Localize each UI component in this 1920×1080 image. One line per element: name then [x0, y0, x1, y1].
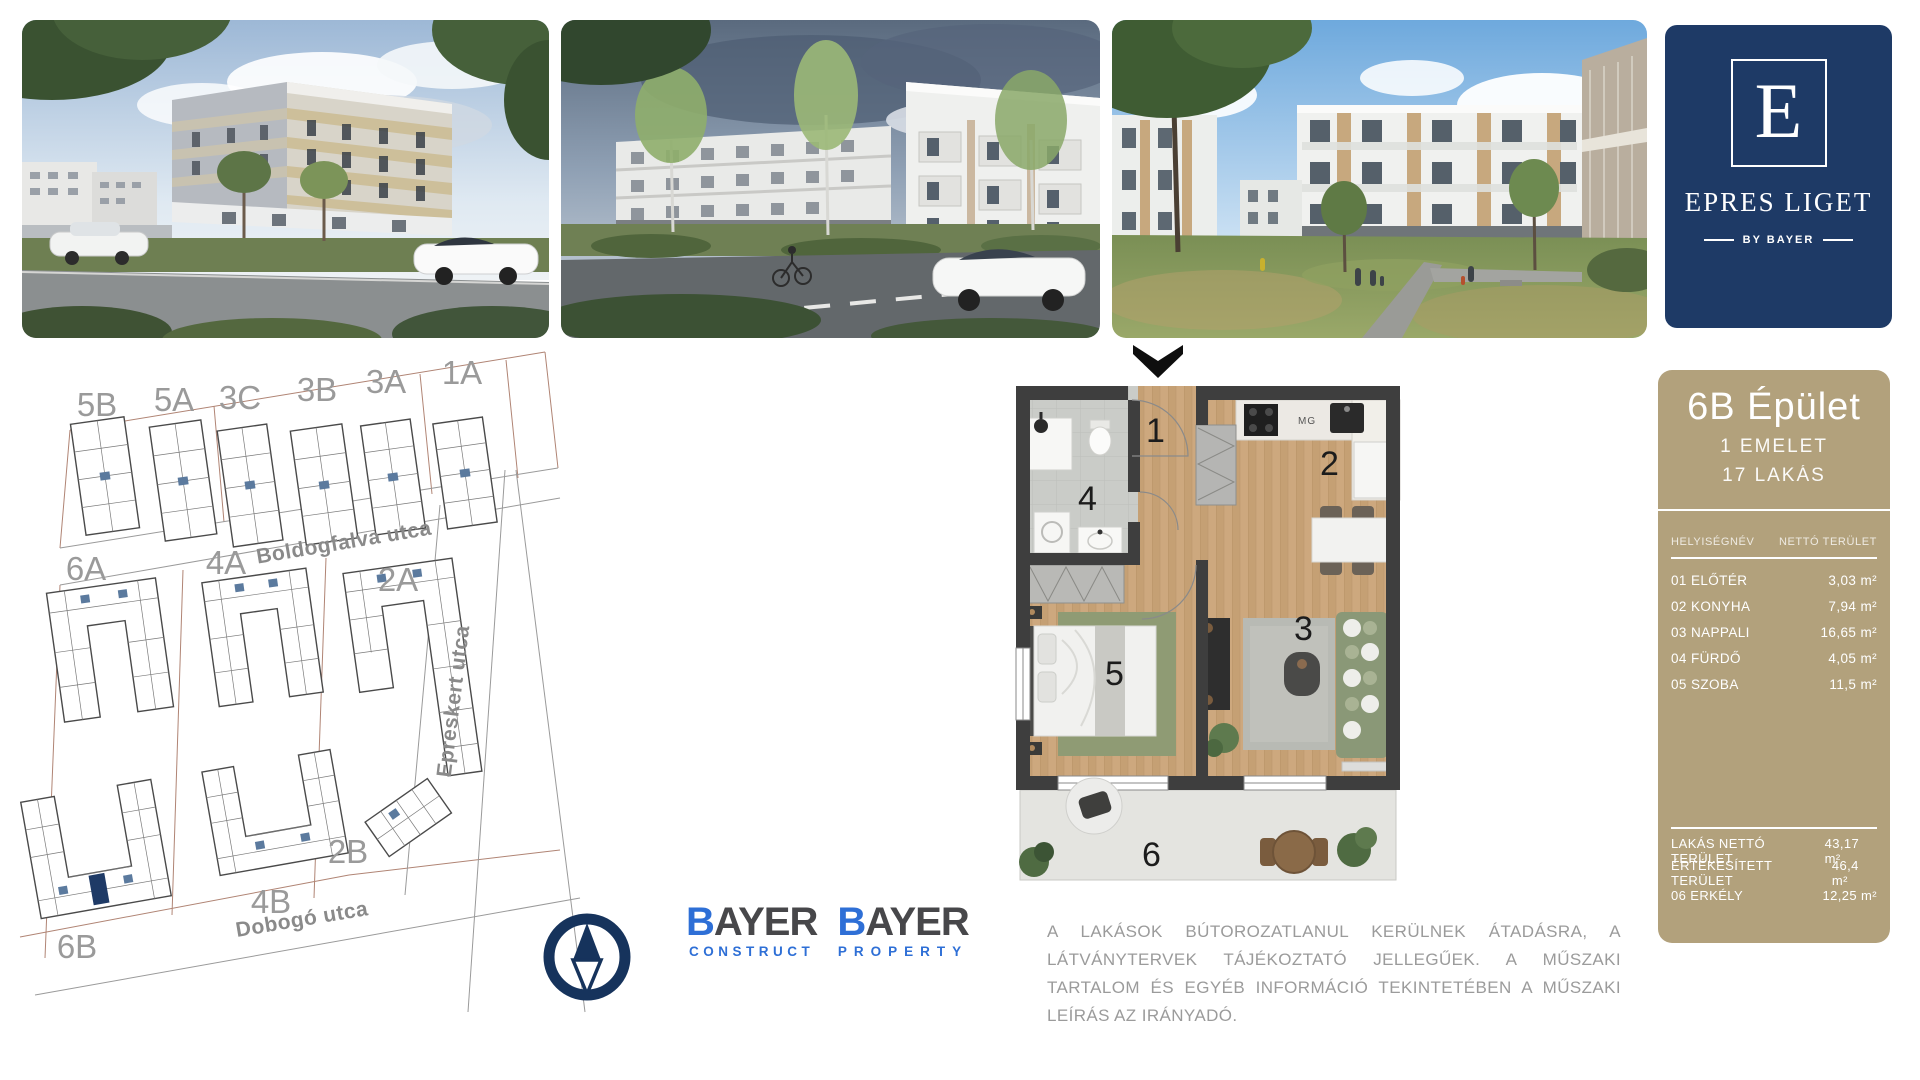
map-building-6B[interactable] — [21, 779, 171, 918]
company-logos: BAYER CONSTRUCT BAYER PROPERTY — [686, 903, 969, 959]
render-photo-3-art — [1112, 20, 1647, 338]
construct-label: CONSTRUCT — [686, 944, 817, 959]
hanging-chair — [1066, 778, 1122, 834]
brand-logo-panel: E EPRES LIGET BY BAYER — [1665, 25, 1892, 328]
table-row: 02 KONYHA 7,94 m² — [1671, 593, 1877, 619]
table-row: 04 FÜRDŐ 4,05 m² — [1671, 645, 1877, 671]
byline-text: BY BAYER — [1743, 234, 1815, 246]
map-building-5A[interactable] — [149, 420, 216, 541]
table-row: 01 ELŐTÉR 3,03 m² — [1671, 567, 1877, 593]
column-header-area: NETTÓ TERÜLET — [1779, 536, 1877, 548]
table-row: 03 NAPPALI 16,65 m² — [1671, 619, 1877, 645]
summary-row: ÉRTÉKESÍTETT TERÜLET 46,4 m² — [1671, 862, 1877, 884]
info-panel-header: 6B Épület 1 EMELET 17 LAKÁS — [1658, 370, 1890, 509]
map-label-3C[interactable]: 3C — [219, 379, 261, 416]
byline-rule-right — [1823, 239, 1853, 241]
column-header-room: HELYISÉGNÉV — [1671, 536, 1754, 548]
render-photo-courtyard — [1112, 20, 1647, 338]
table-row: 05 SZOBA 11,5 m² — [1671, 671, 1877, 697]
bayer-property-logo: BAYER PROPERTY — [837, 903, 968, 959]
map-building-1A[interactable] — [433, 417, 497, 529]
floor-plan: MG 1 2 3 4 5 6 — [1010, 340, 1406, 888]
map-label-3A[interactable]: 3A — [366, 363, 406, 400]
render-photo-street-view — [561, 20, 1100, 338]
map-building-3C[interactable] — [217, 424, 283, 547]
room-number-6: 6 — [1142, 836, 1161, 874]
map-building-3B[interactable] — [290, 424, 357, 545]
room-number-4: 4 — [1078, 480, 1097, 518]
render-photo-1-art — [22, 20, 549, 338]
wardrobe — [1028, 565, 1124, 603]
brand-byline: BY BAYER — [1665, 234, 1892, 246]
brochure-page: E EPRES LIGET BY BAYER — [0, 0, 1920, 1080]
units-subtitle: 17 LAKÁS — [1658, 465, 1890, 487]
site-map: 5B 5A 3C 3B 3A 1A 6A 4A 2A 6B 4B 2B Bold… — [15, 350, 710, 1020]
bed — [1026, 626, 1156, 736]
map-label-6B[interactable]: 6B — [57, 928, 97, 965]
microwave-label: MG — [1298, 416, 1316, 427]
summary-rule — [1671, 827, 1877, 829]
map-building-2B[interactable] — [365, 779, 451, 857]
map-label-5B[interactable]: 5B — [77, 386, 117, 423]
map-label-1A[interactable]: 1A — [442, 354, 482, 391]
room-number-3: 3 — [1294, 610, 1313, 648]
toilet-icon — [1089, 420, 1111, 455]
map-building-4A[interactable] — [202, 568, 323, 706]
map-building-4B[interactable] — [202, 750, 348, 876]
sink-vanity-icon — [1078, 527, 1122, 553]
stove-icon — [1244, 404, 1278, 436]
room-number-2: 2 — [1320, 445, 1339, 483]
washer-icon — [1034, 512, 1070, 553]
map-label-3B[interactable]: 3B — [297, 371, 337, 408]
room-area-table: HELYISÉGNÉV NETTÓ TERÜLET 01 ELŐTÉR 3,03… — [1658, 536, 1890, 697]
brand-emblem-box: E — [1731, 59, 1827, 167]
render-photo-2-art — [561, 20, 1100, 338]
area-summary: LAKÁS NETTÓ TERÜLET 43,17 m² ÉRTÉKESÍTET… — [1671, 818, 1877, 906]
bayer-construct-logo: BAYER CONSTRUCT — [686, 903, 817, 959]
building-title: 6B Épület — [1658, 386, 1890, 429]
coffee-table — [1284, 652, 1320, 696]
legal-disclaimer: A LAKÁSOK BÚTOROZATLANUL KERÜLNEK ÁTADÁS… — [1047, 918, 1621, 1030]
map-label-2A[interactable]: 2A — [378, 561, 418, 598]
bayer-b-letter: B — [837, 900, 865, 944]
map-label-5A[interactable]: 5A — [154, 381, 194, 418]
map-label-6A[interactable]: 6A — [66, 550, 106, 587]
apartment-info-panel: 6B Épület 1 EMELET 17 LAKÁS HELYISÉGNÉV … — [1658, 370, 1890, 943]
map-building-5B[interactable] — [70, 417, 139, 535]
map-building-3A[interactable] — [361, 419, 426, 535]
room-number-5: 5 — [1105, 655, 1124, 693]
property-label: PROPERTY — [837, 944, 968, 959]
table-header-rule — [1671, 557, 1877, 559]
map-building-6A[interactable] — [46, 578, 173, 722]
byline-rule-left — [1704, 239, 1734, 241]
bayer-b-letter: B — [686, 900, 714, 944]
map-label-4A[interactable]: 4A — [206, 544, 246, 581]
brand-emblem-letter: E — [1755, 72, 1803, 150]
floor-subtitle: 1 EMELET — [1658, 436, 1890, 458]
pointer-chevron-icon — [1133, 345, 1183, 378]
panel-divider — [1658, 509, 1890, 511]
room-number-1: 1 — [1146, 412, 1165, 450]
render-photo-street-corner — [22, 20, 549, 338]
map-label-2B[interactable]: 2B — [328, 833, 368, 870]
sofa — [1336, 612, 1388, 758]
compass-icon — [549, 919, 625, 995]
brand-title: EPRES LIGET — [1665, 187, 1892, 218]
